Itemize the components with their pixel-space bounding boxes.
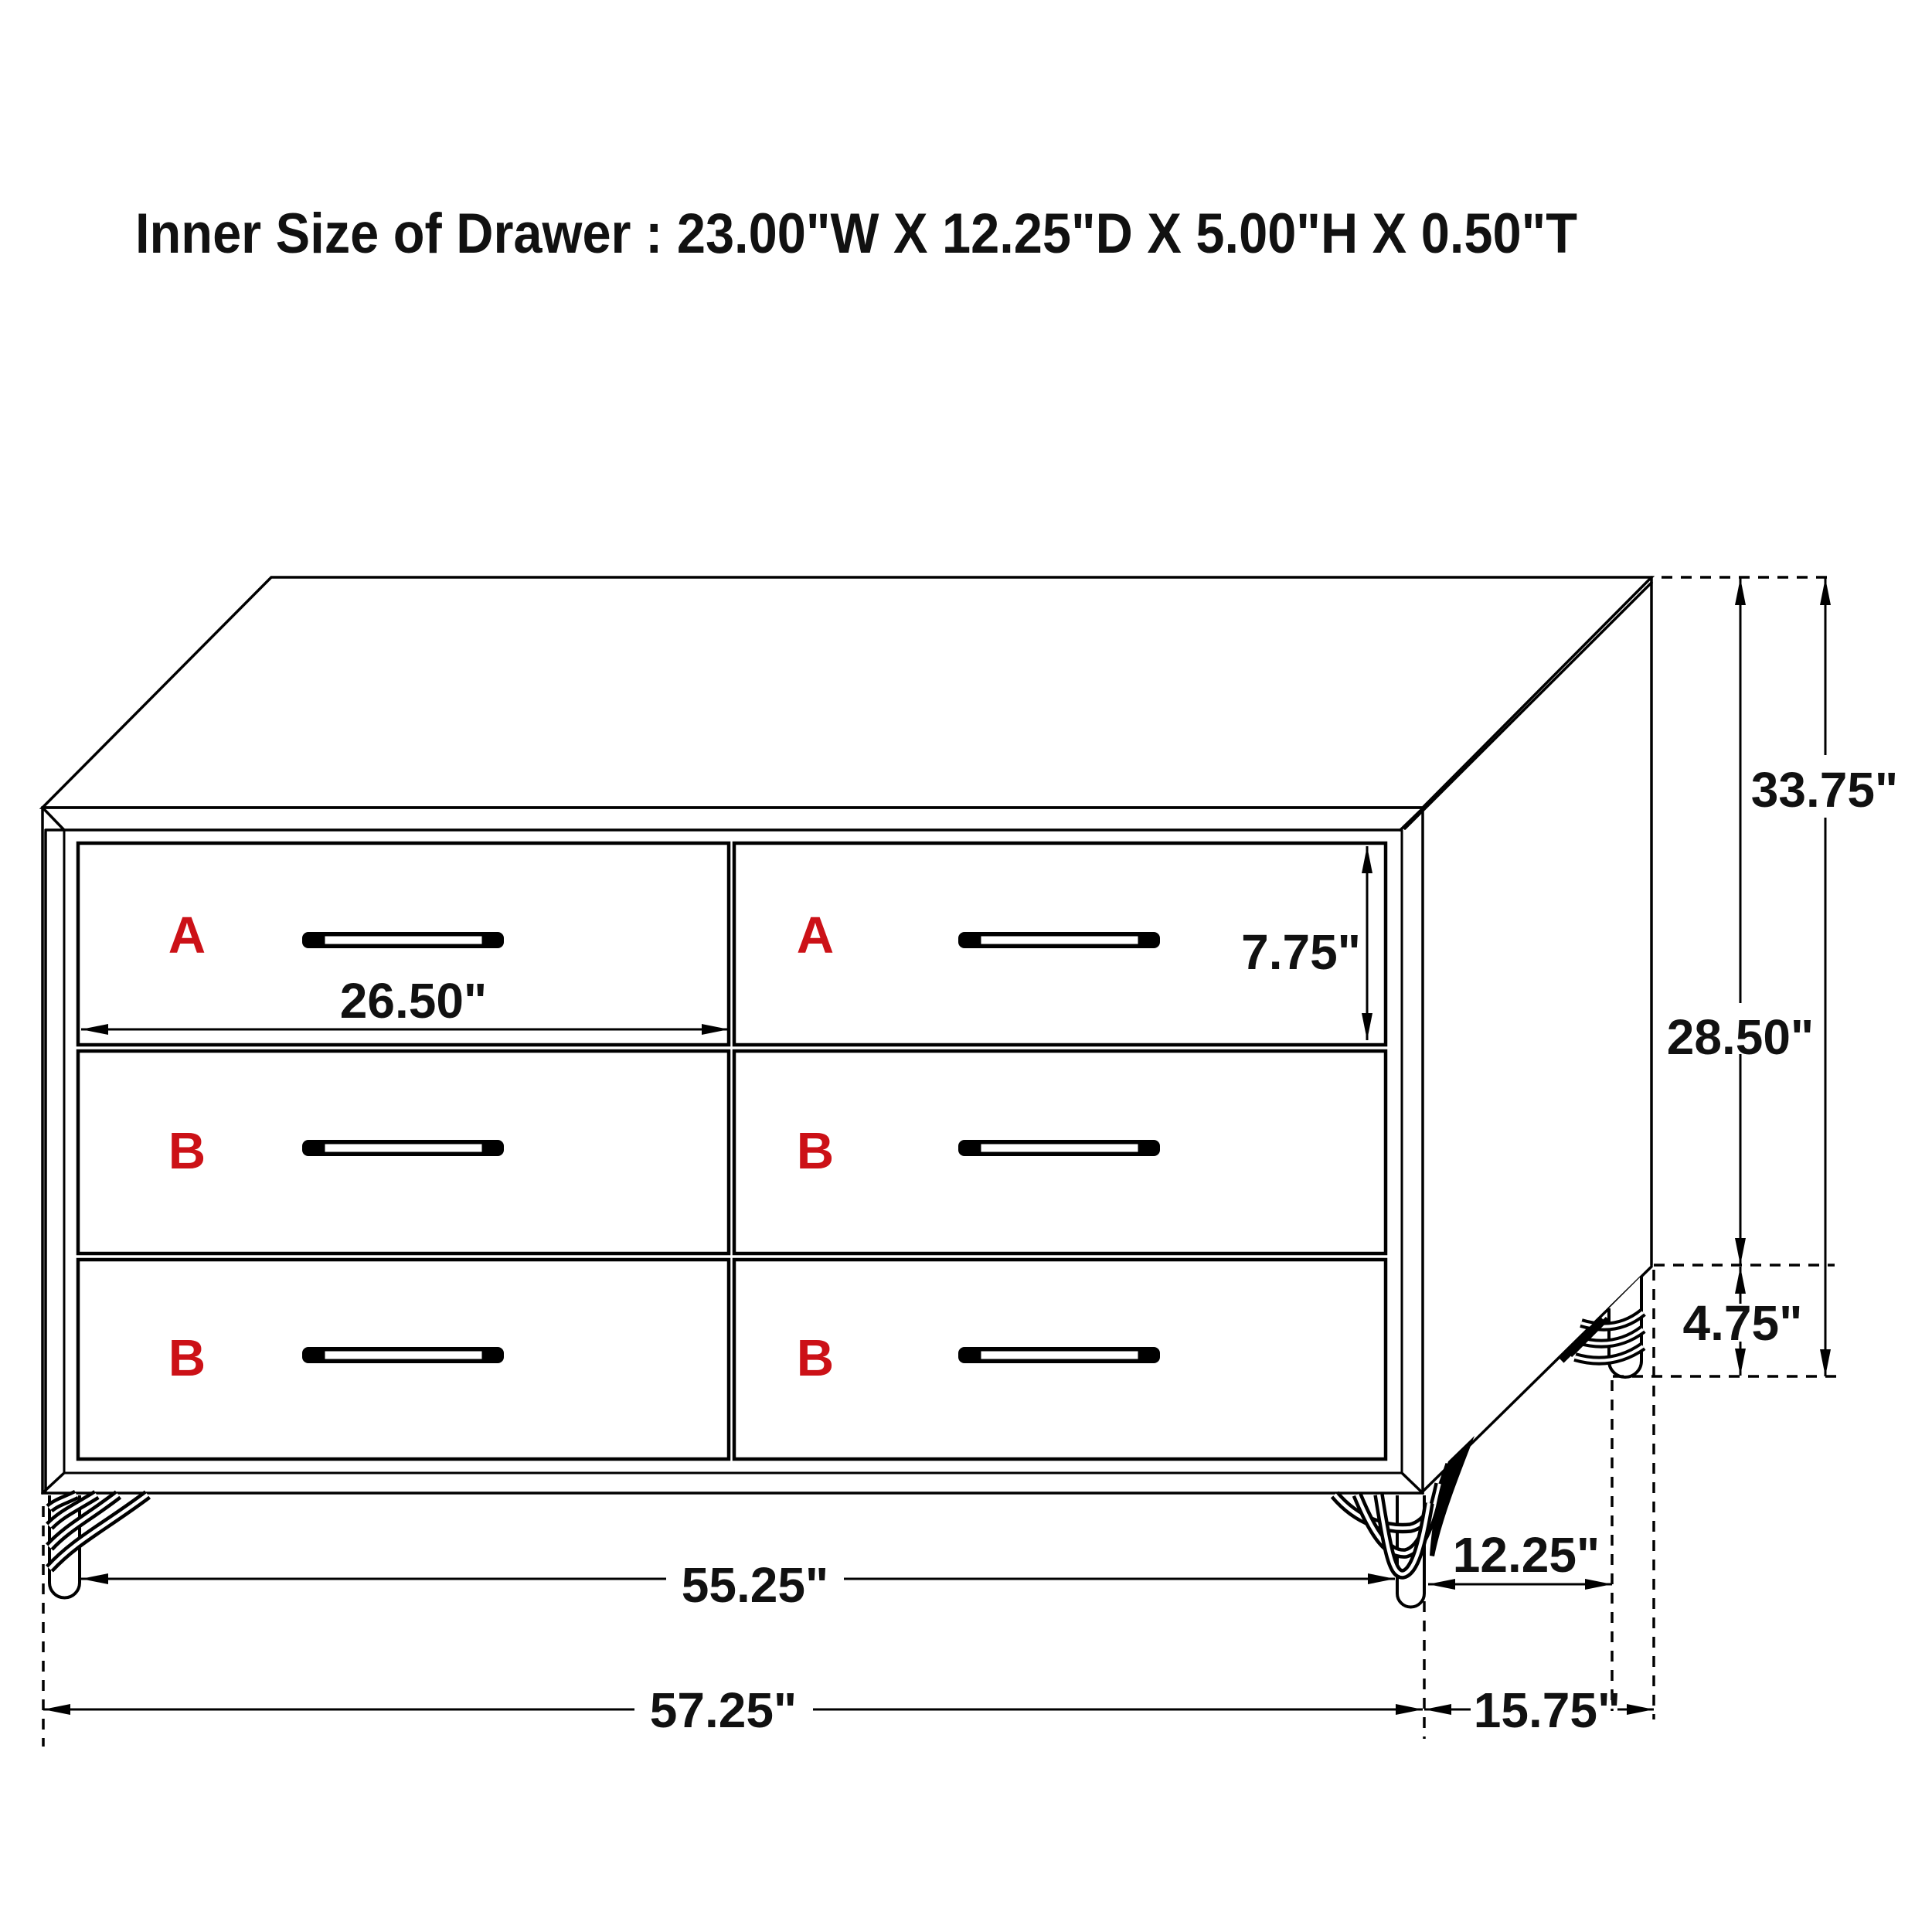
svg-text:B: B: [168, 1122, 206, 1180]
svg-text:A: A: [168, 906, 206, 964]
svg-text:Inner Size of Drawer : 23.00"W: Inner Size of Drawer : 23.00"W X 12.25"D…: [135, 202, 1577, 265]
svg-text:26.50": 26.50": [340, 973, 488, 1029]
svg-text:33.75": 33.75": [1751, 762, 1899, 818]
svg-text:A: A: [797, 906, 834, 964]
svg-text:7.75": 7.75": [1241, 924, 1361, 980]
svg-text:57.25": 57.25": [650, 1682, 798, 1738]
svg-text:B: B: [168, 1329, 206, 1387]
svg-text:28.50": 28.50": [1667, 1009, 1815, 1065]
svg-text:15.75": 15.75": [1474, 1682, 1621, 1738]
svg-text:55.25": 55.25": [682, 1557, 829, 1613]
svg-text:B: B: [797, 1122, 834, 1180]
svg-text:4.75": 4.75": [1683, 1295, 1803, 1351]
svg-text:12.25": 12.25": [1453, 1527, 1600, 1583]
svg-text:B: B: [797, 1329, 834, 1387]
